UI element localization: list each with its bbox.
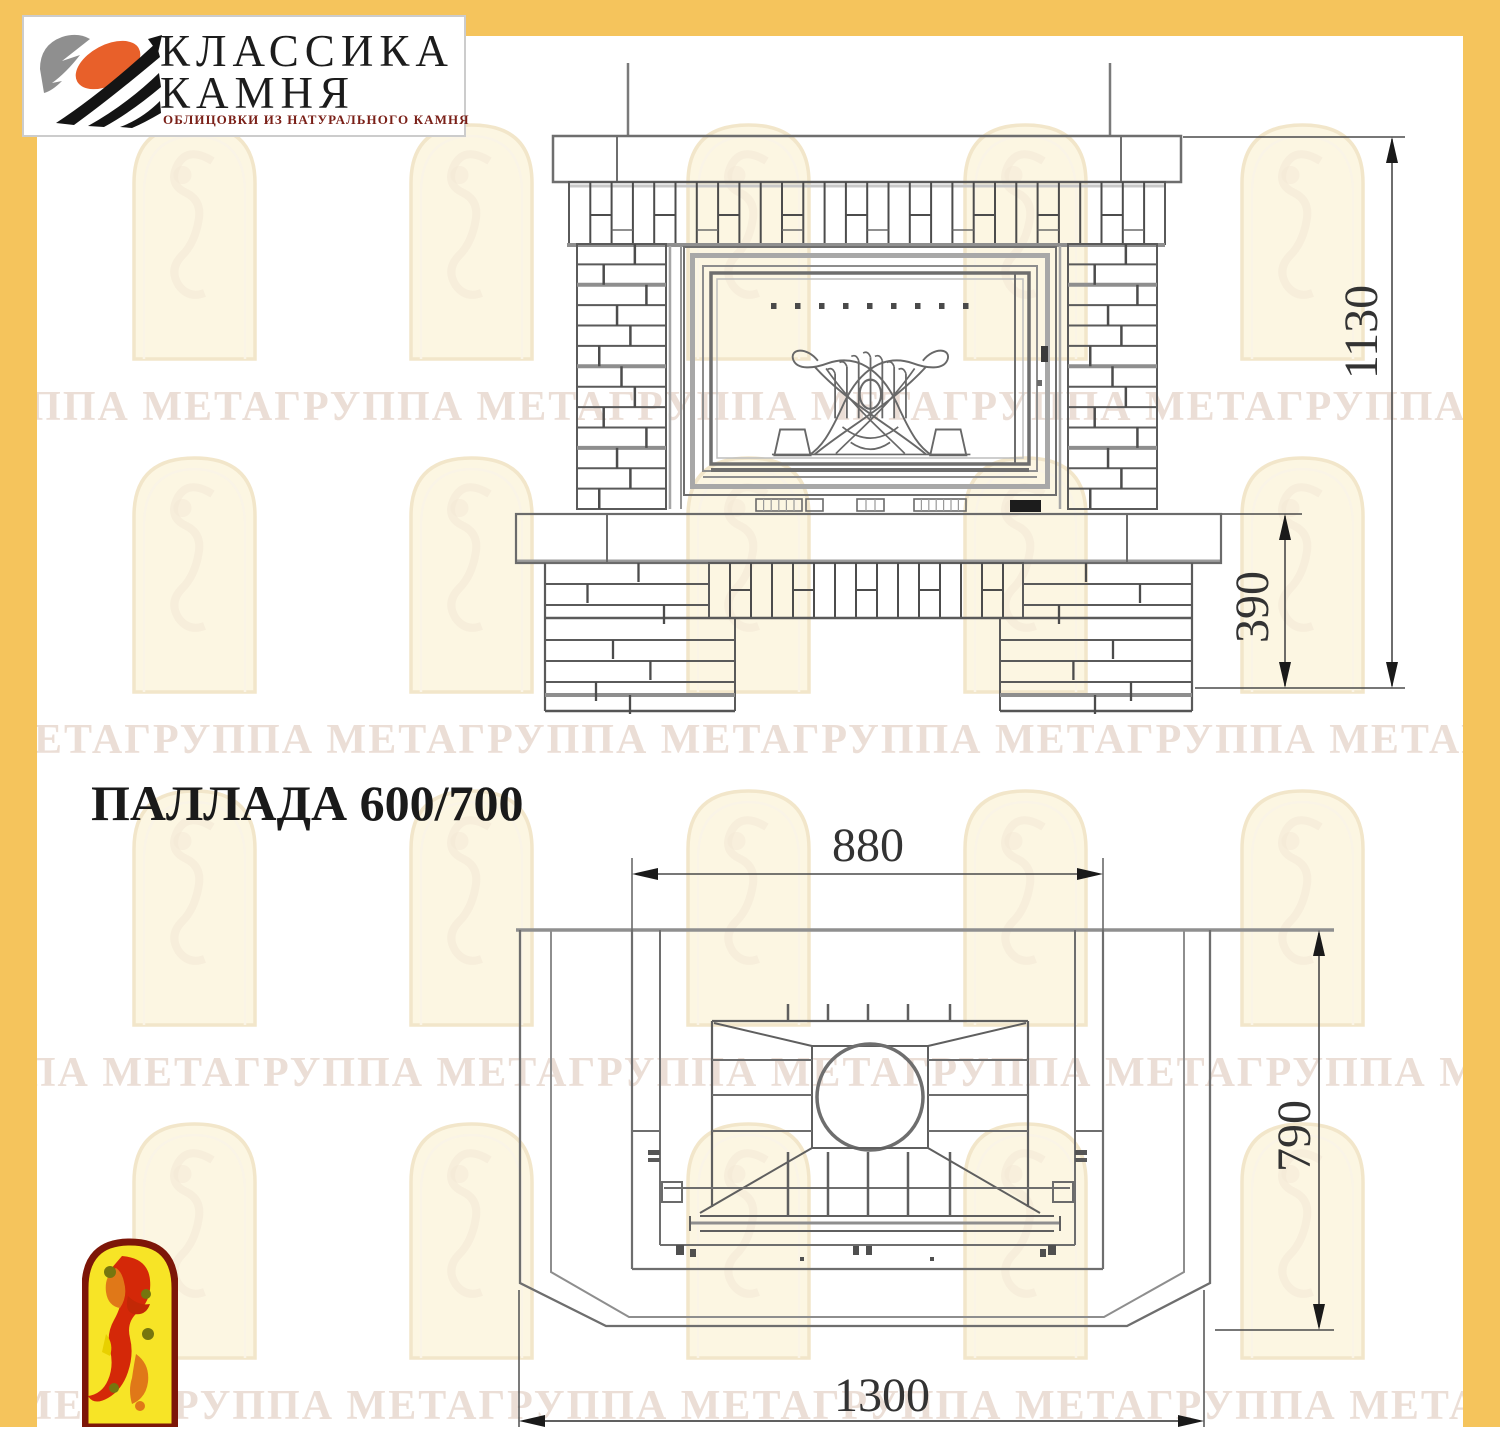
svg-text:790: 790 bbox=[1268, 1100, 1321, 1172]
svg-text:1130: 1130 bbox=[1335, 285, 1388, 379]
svg-text:880: 880 bbox=[832, 819, 904, 872]
svg-text:390: 390 bbox=[1226, 571, 1279, 643]
svg-text:1300: 1300 bbox=[834, 1369, 930, 1422]
